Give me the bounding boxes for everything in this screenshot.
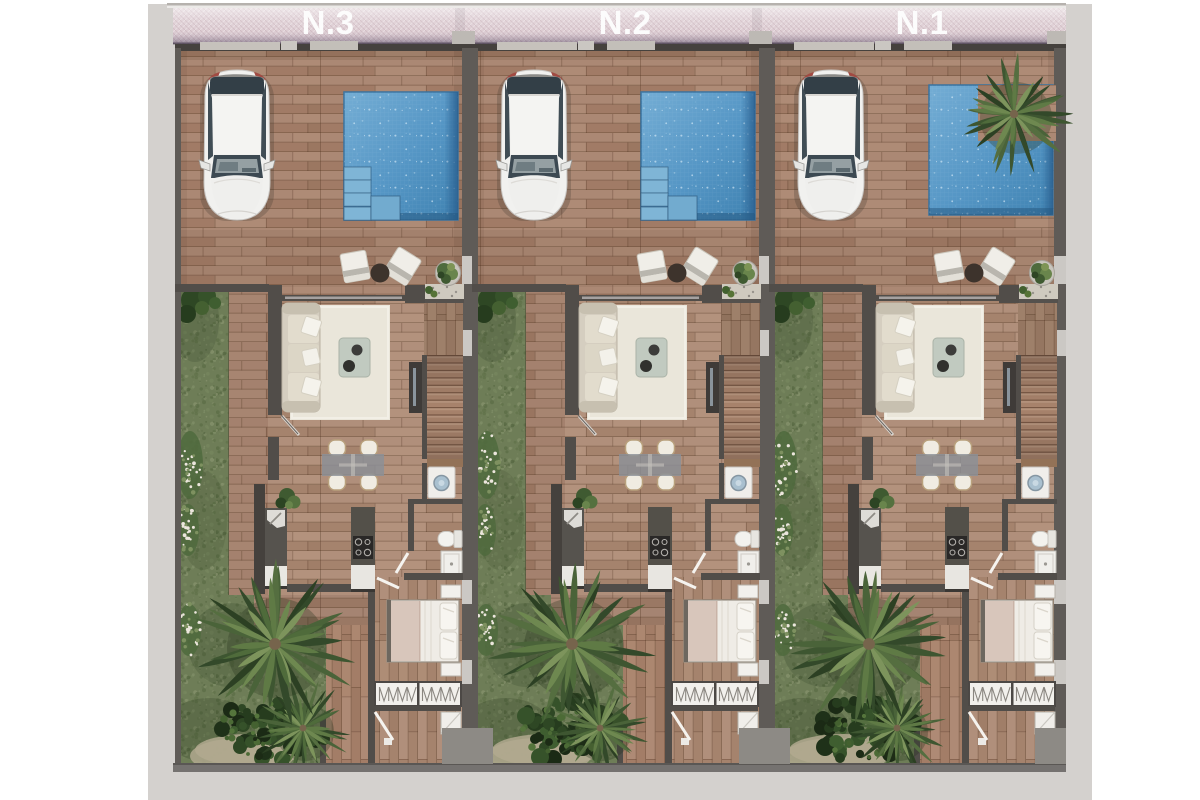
svg-text:N.1: N.1 (896, 4, 949, 41)
svg-text:N.2: N.2 (599, 4, 652, 41)
svg-text:N.3: N.3 (302, 4, 355, 41)
